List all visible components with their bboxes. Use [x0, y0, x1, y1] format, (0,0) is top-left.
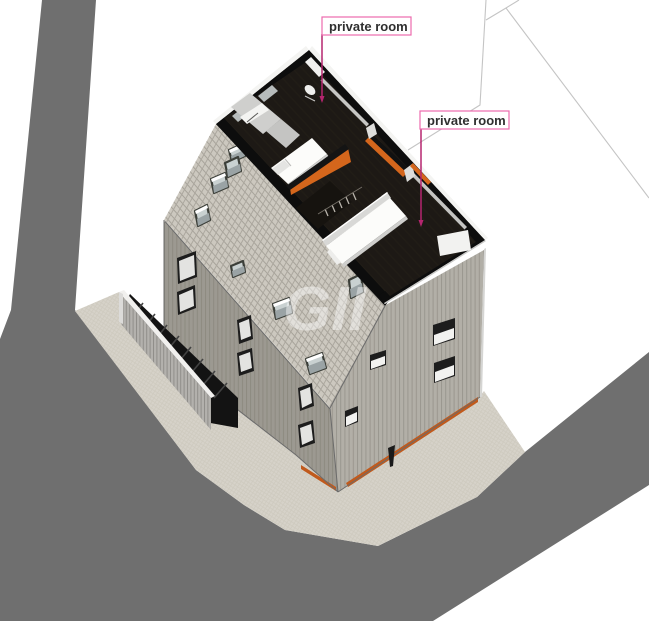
svg-text:GII: GII [283, 275, 367, 344]
svg-text:private room: private room [329, 19, 408, 34]
svg-text:private room: private room [427, 113, 506, 128]
